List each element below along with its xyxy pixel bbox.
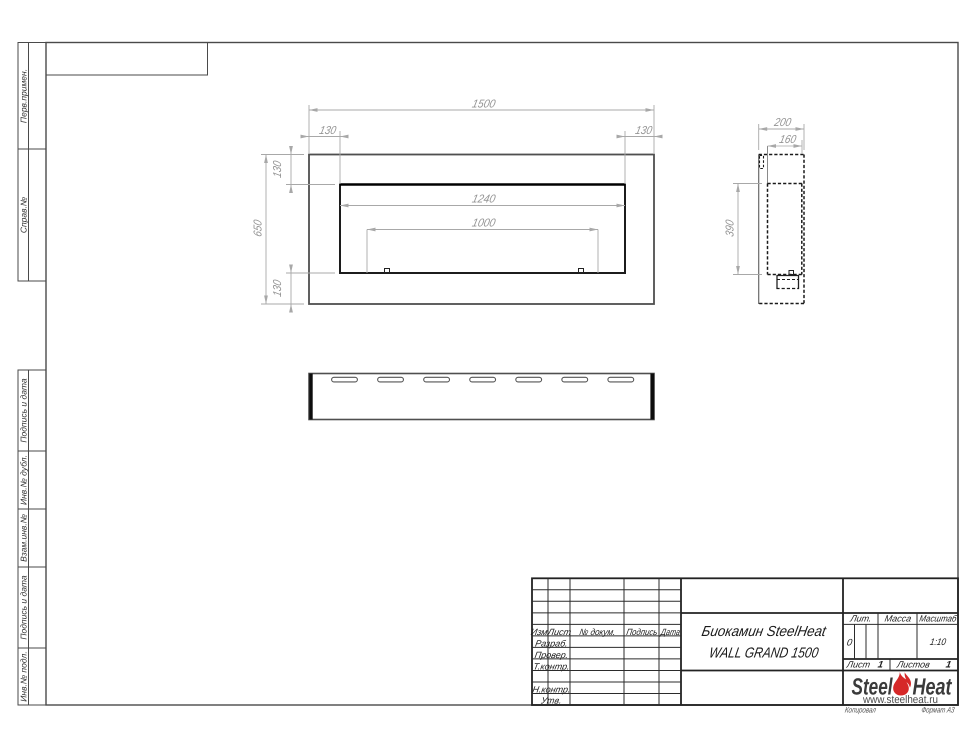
svg-text:Подпись: Подпись bbox=[626, 627, 659, 637]
svg-text:Провер.: Провер. bbox=[534, 650, 569, 660]
svg-text:1000: 1000 bbox=[471, 218, 497, 230]
svg-text:650: 650 bbox=[253, 218, 265, 238]
svg-text:Биокамин SteelHeat: Биокамин SteelHeat bbox=[700, 624, 828, 640]
svg-text:Формат А3: Формат А3 bbox=[921, 706, 956, 715]
svg-text:Лист: Лист bbox=[546, 627, 572, 637]
svg-text:Н.контр.: Н.контр. bbox=[532, 685, 572, 695]
svg-text:Лист: Лист bbox=[845, 660, 871, 670]
svg-text:Дата: Дата bbox=[659, 627, 681, 637]
svg-text:390: 390 bbox=[725, 218, 737, 238]
svg-text:Перв.примен.: Перв.примен. bbox=[19, 69, 29, 123]
svg-text:№ докум.: № докум. bbox=[579, 627, 617, 637]
svg-text:130: 130 bbox=[272, 159, 284, 179]
svg-text:Разраб.: Разраб. bbox=[534, 639, 568, 649]
svg-text:Лит.: Лит. bbox=[849, 614, 873, 624]
svg-text:Взам.инв.№: Взам.инв.№ bbox=[19, 514, 29, 562]
svg-text:Инв.№ подл.: Инв.№ подл. bbox=[19, 651, 29, 701]
svg-text:1240: 1240 bbox=[471, 194, 497, 206]
svg-text:Справ.№: Справ.№ bbox=[19, 197, 29, 233]
svg-text:Инв.№ дубл.: Инв.№ дубл. bbox=[19, 455, 29, 505]
svg-text:Подпись и дата: Подпись и дата bbox=[19, 575, 29, 640]
svg-text:200: 200 bbox=[772, 117, 792, 129]
svg-text:130: 130 bbox=[318, 125, 338, 137]
svg-text:160: 160 bbox=[778, 134, 798, 146]
svg-text:Копировал: Копировал bbox=[844, 706, 877, 715]
svg-text:www.steelheat.ru: www.steelheat.ru bbox=[862, 694, 938, 706]
svg-text:130: 130 bbox=[634, 125, 654, 137]
svg-text:Масштаб: Масштаб bbox=[919, 614, 959, 624]
svg-text:1:10: 1:10 bbox=[929, 637, 948, 648]
svg-text:1500: 1500 bbox=[471, 99, 497, 111]
svg-text:Листов: Листов bbox=[895, 660, 931, 670]
svg-text:130: 130 bbox=[272, 278, 284, 298]
svg-text:Подпись и дата: Подпись и дата bbox=[19, 378, 29, 443]
svg-text:WALL GRAND 1500: WALL GRAND 1500 bbox=[708, 646, 820, 662]
svg-text:Утв.: Утв. bbox=[539, 696, 562, 706]
svg-text:Т.контр.: Т.контр. bbox=[532, 662, 570, 672]
svg-text:Масса: Масса bbox=[884, 614, 912, 624]
